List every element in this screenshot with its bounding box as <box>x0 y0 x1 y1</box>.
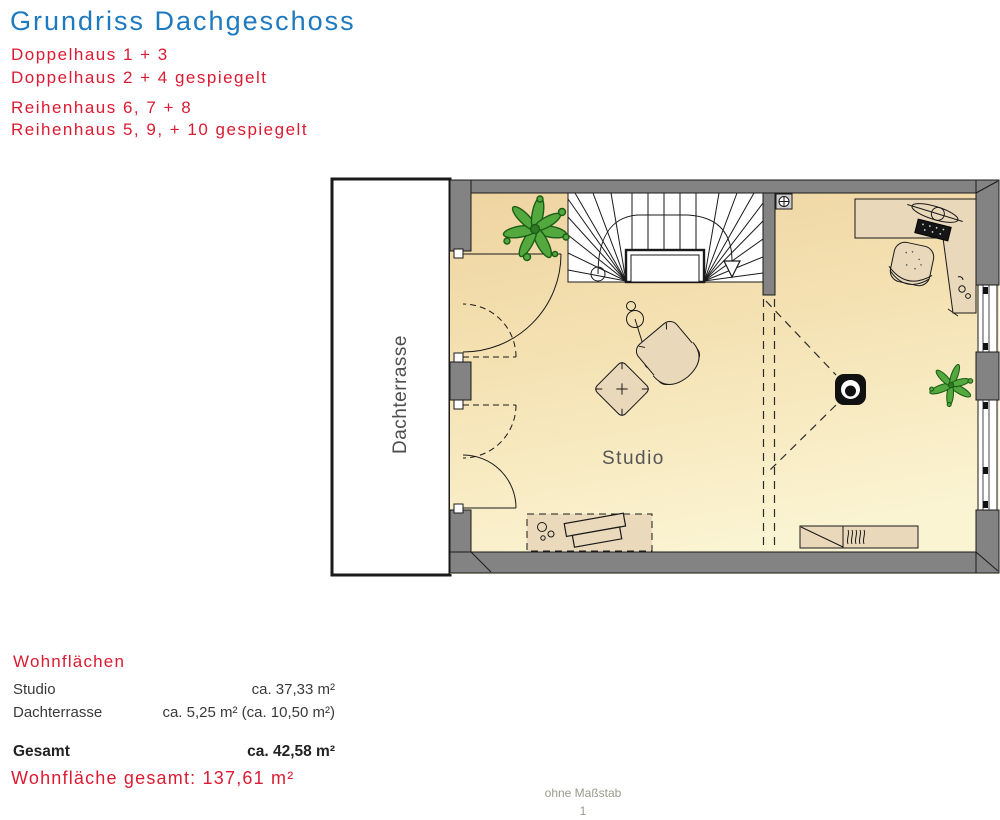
footer: ohne Maßstab 1 <box>433 786 733 818</box>
wall-right-upper <box>976 180 999 285</box>
roof-drain-icon <box>776 194 792 209</box>
terrace-label: Dachterrasse <box>390 335 411 454</box>
chimney-icon <box>835 374 866 405</box>
wall-top <box>450 180 999 193</box>
tv-board <box>527 513 652 551</box>
area-label: Studio <box>13 681 56 698</box>
area-value: ca. 37,33 m² <box>252 681 335 698</box>
total-label: Gesamt <box>13 743 70 761</box>
area-row-dachterrasse: Dachterrasse ca. 5,25 m² (ca. 10,50 m²) <box>13 704 335 721</box>
floor-plan: Dachterrasse Studio <box>330 177 1000 580</box>
areas-heading: Wohnflächen <box>13 652 125 672</box>
sideboard <box>800 526 918 548</box>
page-title: Grundriss Dachgeschoss <box>10 6 356 37</box>
total-value: ca. 42,58 m² <box>247 743 335 761</box>
floor-plan-drawing: Dachterrasse Studio <box>330 177 1000 580</box>
window-lower <box>978 400 997 510</box>
area-label: Dachterrasse <box>13 704 102 721</box>
wall-stair-right <box>763 193 775 295</box>
variant-line-doppelhaus-1-3: Doppelhaus 1 + 3 <box>11 45 169 65</box>
room-label: Studio <box>602 448 665 469</box>
area-value: ca. 5,25 m² (ca. 10,50 m²) <box>162 704 335 721</box>
grand-total: Wohnfläche gesamt: 137,61 m² <box>11 768 294 789</box>
area-total-row: Gesamt ca. 42,58 m² <box>13 743 335 761</box>
wall-right-middle <box>976 352 999 400</box>
variant-line-reihenhaus-6-7-8: Reihenhaus 6, 7 + 8 <box>11 98 192 118</box>
wall-right-lower <box>976 510 999 573</box>
page-number: 1 <box>433 804 733 818</box>
variant-line-doppelhaus-2-4: Doppelhaus 2 + 4 gespiegelt <box>11 68 267 88</box>
scale-note: ohne Maßstab <box>433 786 733 800</box>
stair-void <box>626 250 704 282</box>
variant-line-reihenhaus-5-9-10: Reihenhaus 5, 9, + 10 gespiegelt <box>11 120 308 140</box>
window-upper <box>978 285 997 352</box>
area-row-studio: Studio ca. 37,33 m² <box>13 681 335 698</box>
wall-bottom <box>450 552 999 573</box>
wall-pier-top-left <box>450 180 471 251</box>
wall-pier-middle-left <box>450 362 471 400</box>
